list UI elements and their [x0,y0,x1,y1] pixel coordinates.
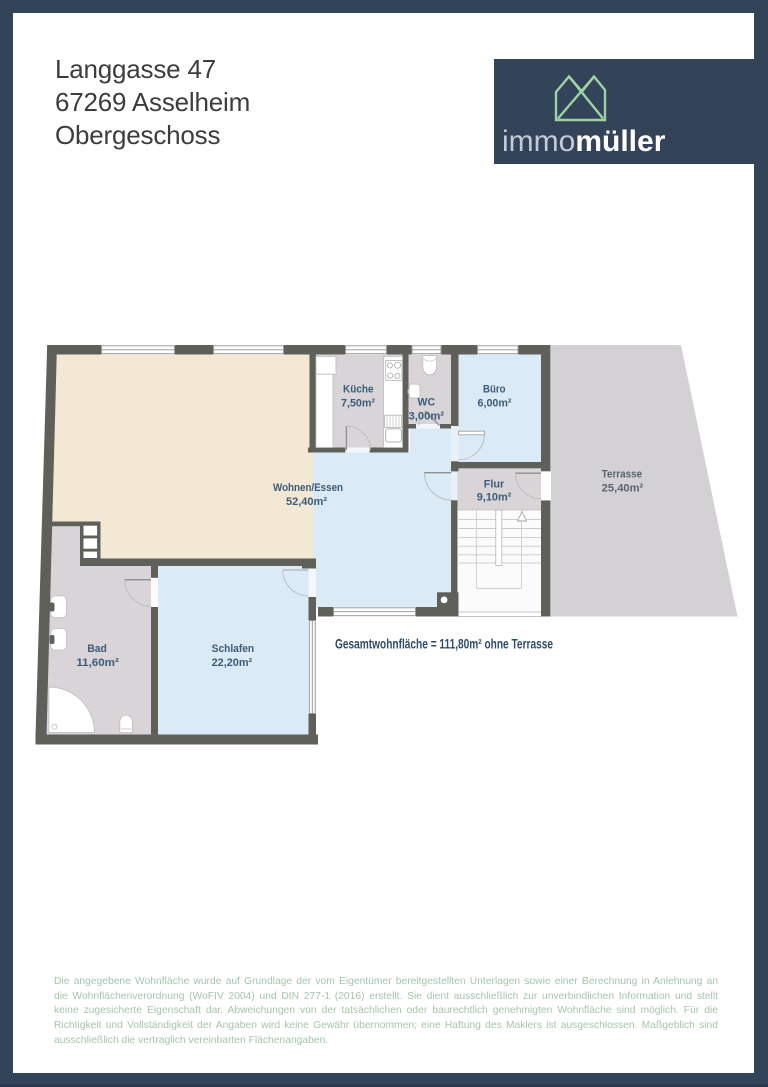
svg-text:WC: WC [418,396,436,408]
svg-text:3,00m²: 3,00m² [409,410,445,422]
svg-text:11,60m²: 11,60m² [76,657,119,669]
svg-text:Schlafen: Schlafen [212,643,255,655]
svg-text:Wohnen/Essen: Wohnen/Essen [273,482,343,494]
svg-text:52,40m²: 52,40m² [286,496,327,508]
svg-text:6,00m²: 6,00m² [478,398,512,410]
svg-text:Gesamtwohnfläche = 111,80m² oh: Gesamtwohnfläche = 111,80m² ohne Terrass… [335,636,553,652]
svg-text:Büro: Büro [483,384,506,396]
svg-text:22,20m²: 22,20m² [212,657,253,669]
svg-text:Terrasse: Terrasse [602,469,643,481]
svg-text:Bad: Bad [87,643,107,655]
svg-text:Küche: Küche [343,384,374,396]
svg-text:7,50m²: 7,50m² [341,398,375,410]
svg-text:9,10m²: 9,10m² [477,492,512,504]
svg-text:Flur: Flur [484,479,505,491]
svg-text:25,40m²: 25,40m² [602,482,644,494]
